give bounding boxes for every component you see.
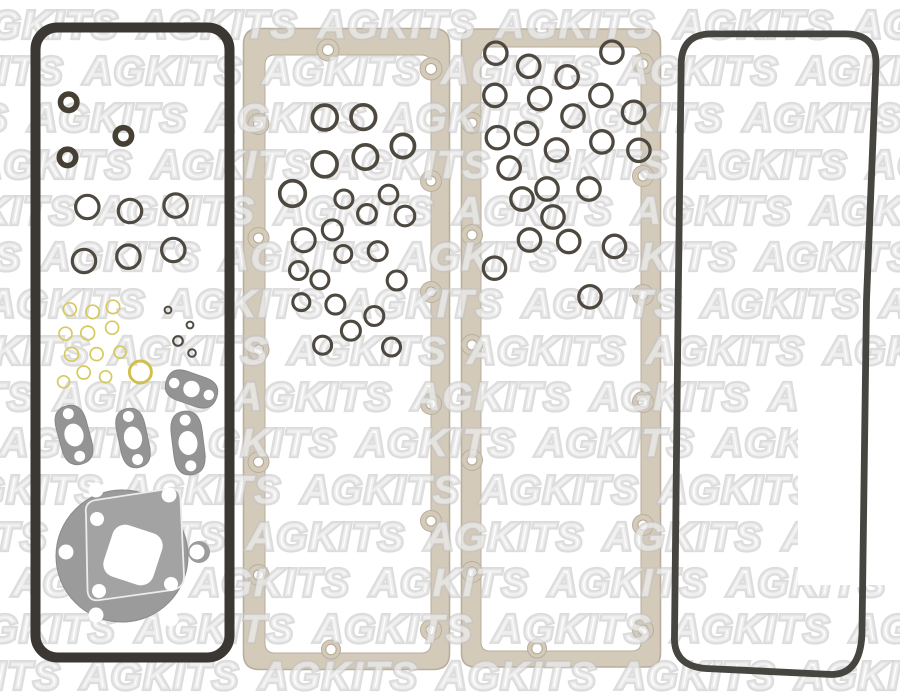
svg-text:AGKITS AGKITS AGKITS AGKITS AG: AGKITS AGKITS AGKITS AGKITS AGKITS AGKIT… bbox=[0, 97, 900, 140]
svg-text:AGKITS AGKITS AGKITS AGKITS AG: AGKITS AGKITS AGKITS AGKITS AGKITS AGKIT… bbox=[0, 190, 900, 233]
svg-text:AGKITS AGKITS AGKITS AGKITS AG: AGKITS AGKITS AGKITS AGKITS AGKITS AGKIT… bbox=[0, 330, 900, 373]
svg-text:AGKITS AGKITS AGKITS AGKITS AG: AGKITS AGKITS AGKITS AGKITS AGKITS AGKIT… bbox=[0, 50, 900, 93]
svg-text:AGKITS AGKITS AGKITS AGKITS AG: AGKITS AGKITS AGKITS AGKITS AGKITS AGKIT… bbox=[0, 283, 900, 326]
svg-text:AGKITS AGKITS AGKITS AGKITS AG: AGKITS AGKITS AGKITS AGKITS AGKITS AGKIT… bbox=[0, 236, 900, 279]
svg-text:AGKITS AGKITS AGKITS AGKITS AG: AGKITS AGKITS AGKITS AGKITS AGKITS AGKIT… bbox=[0, 144, 900, 187]
